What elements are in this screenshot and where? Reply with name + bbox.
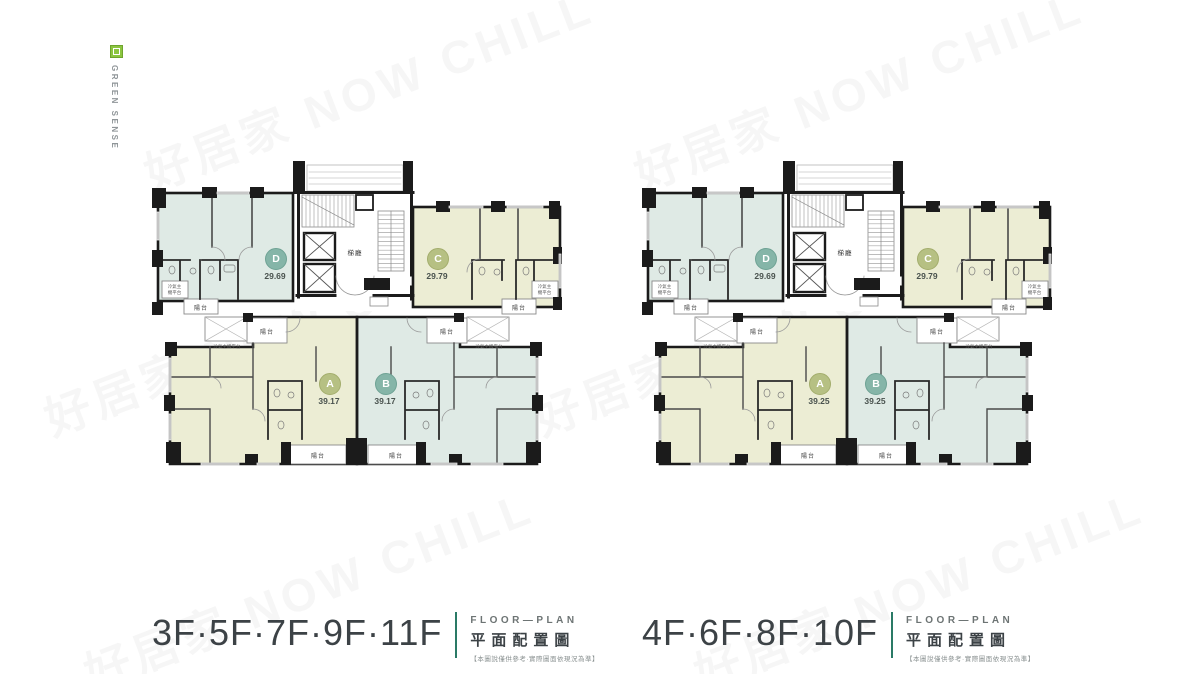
title-right: 4F·6F·8F·10F FLOOR—PLAN 平面配置圖 【本圖說僅供參考·實… bbox=[642, 612, 1035, 663]
green-sense-icon bbox=[110, 45, 123, 58]
unit-area-c: 29.79 bbox=[905, 271, 949, 281]
unit-area-b: 39.25 bbox=[853, 396, 897, 406]
balcony-label: 陽台 bbox=[384, 451, 408, 460]
balcony-label: 陽台 bbox=[435, 327, 459, 336]
unit-badge-b: B bbox=[375, 373, 397, 395]
floor-plan-en: FLOOR—PLAN bbox=[906, 615, 1035, 626]
floors-text: 4F·6F·8F·10F bbox=[642, 612, 878, 654]
lobby-label: 梯廳 bbox=[832, 247, 858, 257]
brand-logo: GREEN SENSE bbox=[110, 45, 130, 150]
unit-badge-a: A bbox=[809, 373, 831, 395]
balcony-label: 陽台 bbox=[874, 451, 898, 460]
ac-platform-label: 冷氣主機平台 bbox=[1026, 284, 1043, 295]
floor-plan-zh: 平面配置圖 bbox=[906, 629, 1035, 650]
balcony-label: 陽台 bbox=[189, 303, 213, 312]
title-left: 3F·5F·7F·9F·11F FLOOR—PLAN 平面配置圖 【本圖說僅供參… bbox=[152, 612, 599, 663]
unit-area-d: 29.69 bbox=[253, 271, 297, 281]
ac-platform-label: 冷氣主機平台 bbox=[468, 344, 510, 350]
balcony-label: 陽台 bbox=[507, 303, 531, 312]
ac-platform-label: 冷氣主機平台 bbox=[166, 284, 183, 295]
unit-badge-c: C bbox=[917, 248, 939, 270]
floor-plan-right: D 29.69 C 29.79 A 39.25 B 39.25 梯廳 陽台 陽台… bbox=[640, 147, 1060, 472]
unit-area-a: 39.17 bbox=[307, 396, 351, 406]
balcony-label: 陽台 bbox=[255, 327, 279, 336]
unit-badge-a: A bbox=[319, 373, 341, 395]
balcony-label: 陽台 bbox=[997, 303, 1021, 312]
ac-platform-label: 冷氣主機平台 bbox=[536, 284, 553, 295]
balcony-label: 陽台 bbox=[306, 451, 330, 460]
unit-badge-d: D bbox=[755, 248, 777, 270]
floors-text: 3F·5F·7F·9F·11F bbox=[152, 612, 442, 654]
floor-plan-en: FLOOR—PLAN bbox=[470, 615, 599, 626]
unit-badge-b: B bbox=[865, 373, 887, 395]
ac-platform-label: 冷氣主機平台 bbox=[958, 344, 1000, 350]
unit-badge-c: C bbox=[427, 248, 449, 270]
unit-area-a: 39.25 bbox=[797, 396, 841, 406]
floor-plan-left: D 29.69 C 29.79 A 39.17 B 39.17 梯廳 陽台 陽台… bbox=[150, 147, 570, 472]
balcony-label: 陽台 bbox=[796, 451, 820, 460]
unit-area-c: 29.79 bbox=[415, 271, 459, 281]
floor-plan-zh: 平面配置圖 bbox=[470, 629, 599, 650]
disclaimer-note: 【本圖說僅供參考·實際圖面依現況為準】 bbox=[470, 653, 599, 663]
brand-name: GREEN SENSE bbox=[110, 65, 119, 150]
ac-platform-label: 冷氣主機平台 bbox=[206, 344, 248, 350]
disclaimer-note: 【本圖說僅供參考·實際圖面依現況為準】 bbox=[906, 653, 1035, 663]
unit-area-d: 29.69 bbox=[743, 271, 787, 281]
lobby-label: 梯廳 bbox=[342, 247, 368, 257]
ac-platform-label: 冷氣主機平台 bbox=[656, 284, 673, 295]
unit-badge-d: D bbox=[265, 248, 287, 270]
page: 好居家 NOW CHILL 好居家 NOW CHILL 好居家 NOW CHIL… bbox=[0, 0, 1200, 674]
unit-area-b: 39.17 bbox=[363, 396, 407, 406]
balcony-label: 陽台 bbox=[925, 327, 949, 336]
title-divider bbox=[455, 612, 457, 658]
balcony-label: 陽台 bbox=[679, 303, 703, 312]
title-divider bbox=[891, 612, 893, 658]
balcony-label: 陽台 bbox=[745, 327, 769, 336]
ac-platform-label: 冷氣主機平台 bbox=[696, 344, 738, 350]
